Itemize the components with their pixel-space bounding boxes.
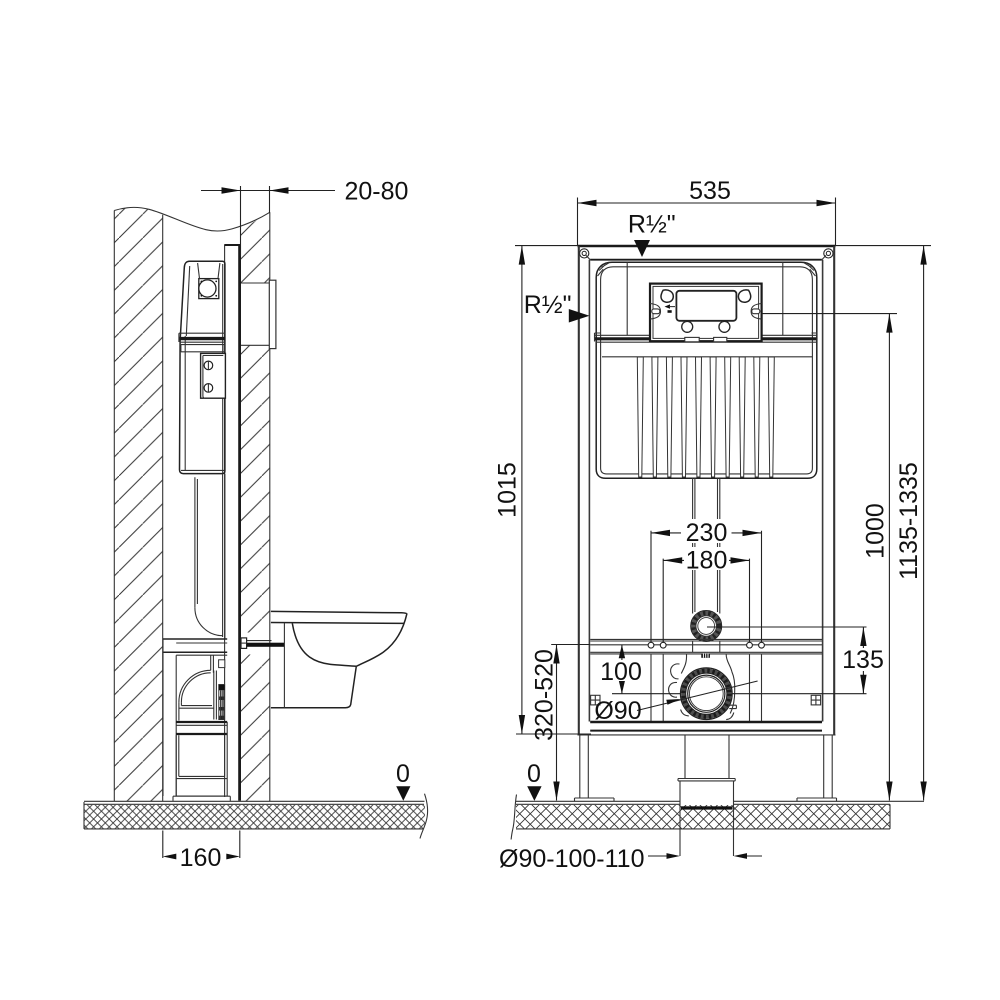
svg-text:1000: 1000 [862, 503, 890, 559]
svg-text:135: 135 [842, 646, 884, 674]
svg-text:535: 535 [689, 177, 731, 205]
svg-text:Ø90: Ø90 [594, 697, 641, 725]
svg-text:0: 0 [527, 760, 541, 788]
svg-text:160: 160 [180, 844, 222, 872]
svg-text:0: 0 [396, 760, 410, 788]
svg-text:100: 100 [600, 658, 642, 686]
svg-text:Ø90-100-110: Ø90-100-110 [499, 845, 644, 873]
svg-text:230: 230 [686, 519, 728, 547]
svg-text:1135-1335: 1135-1335 [895, 462, 923, 580]
svg-text:180: 180 [686, 547, 728, 575]
svg-text:1015: 1015 [494, 462, 522, 518]
svg-text:20-80: 20-80 [345, 178, 409, 206]
svg-text:R½": R½" [524, 291, 572, 319]
svg-text:R½": R½" [628, 211, 676, 239]
svg-text:320-520: 320-520 [531, 649, 559, 741]
